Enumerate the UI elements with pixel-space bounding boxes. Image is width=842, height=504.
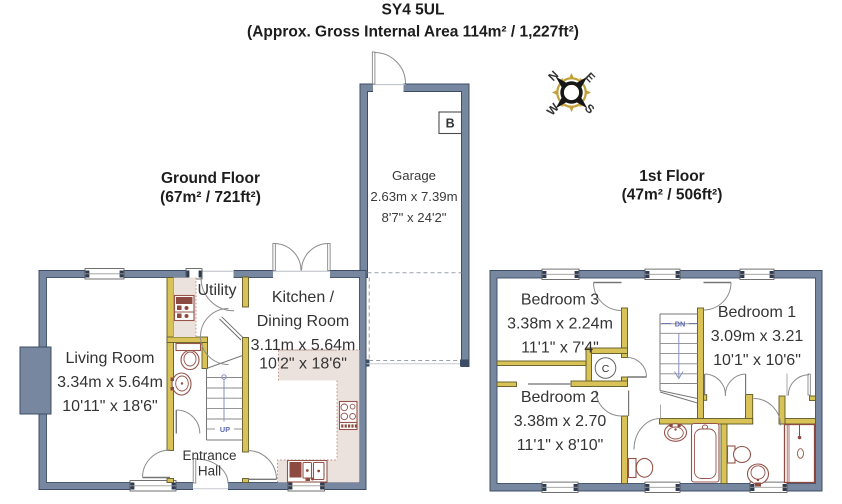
svg-text:10'1" x 10'6": 10'1" x 10'6"	[713, 352, 801, 369]
svg-text:11'1" x 7'4": 11'1" x 7'4"	[521, 340, 599, 357]
svg-text:3.09m x 3.21: 3.09m x 3.21	[711, 328, 804, 345]
svg-text:(67m² / 721ft²): (67m² / 721ft²)	[160, 189, 261, 206]
svg-text:Garage: Garage	[392, 168, 436, 183]
svg-text:Bedroom 2: Bedroom 2	[521, 389, 599, 406]
svg-text:(47m² / 506ft²): (47m² / 506ft²)	[622, 187, 723, 204]
svg-text:Bedroom 3: Bedroom 3	[521, 292, 599, 309]
svg-text:B: B	[446, 117, 455, 131]
svg-text:Hall: Hall	[198, 464, 221, 479]
svg-text:(Approx. Gross Internal Area 1: (Approx. Gross Internal Area 114m² / 1,2…	[247, 24, 579, 41]
svg-text:3.38m x 2.24m: 3.38m x 2.24m	[507, 316, 613, 333]
svg-text:Ground Floor: Ground Floor	[161, 170, 260, 187]
svg-text:2.63m x 7.39m: 2.63m x 7.39m	[370, 189, 457, 204]
svg-text:SY4 5UL: SY4 5UL	[382, 2, 445, 19]
svg-text:1st Floor: 1st Floor	[639, 168, 704, 185]
svg-text:8'7" x 24'2": 8'7" x 24'2"	[382, 210, 447, 225]
svg-text:C: C	[602, 363, 610, 375]
svg-text:Dining Room: Dining Room	[257, 313, 349, 330]
svg-text:10'2" x 18'6": 10'2" x 18'6"	[259, 356, 347, 373]
svg-text:3.34m x 5.64m: 3.34m x 5.64m	[57, 374, 163, 391]
svg-text:UP: UP	[220, 425, 230, 434]
svg-text:Bedroom 1: Bedroom 1	[718, 304, 796, 321]
svg-text:3.38m x 2.70: 3.38m x 2.70	[514, 413, 607, 430]
svg-text:Entrance: Entrance	[182, 448, 236, 463]
svg-text:11'1" x 8'10": 11'1" x 8'10"	[517, 437, 604, 454]
svg-text:Utility: Utility	[197, 282, 236, 299]
svg-text:Living Room: Living Room	[66, 350, 155, 367]
svg-text:3.11m x 5.64m: 3.11m x 5.64m	[251, 337, 356, 354]
svg-text:Kitchen /: Kitchen /	[272, 289, 335, 306]
svg-text:DN: DN	[675, 320, 686, 329]
svg-text:10'11" x 18'6": 10'11" x 18'6"	[62, 398, 157, 415]
